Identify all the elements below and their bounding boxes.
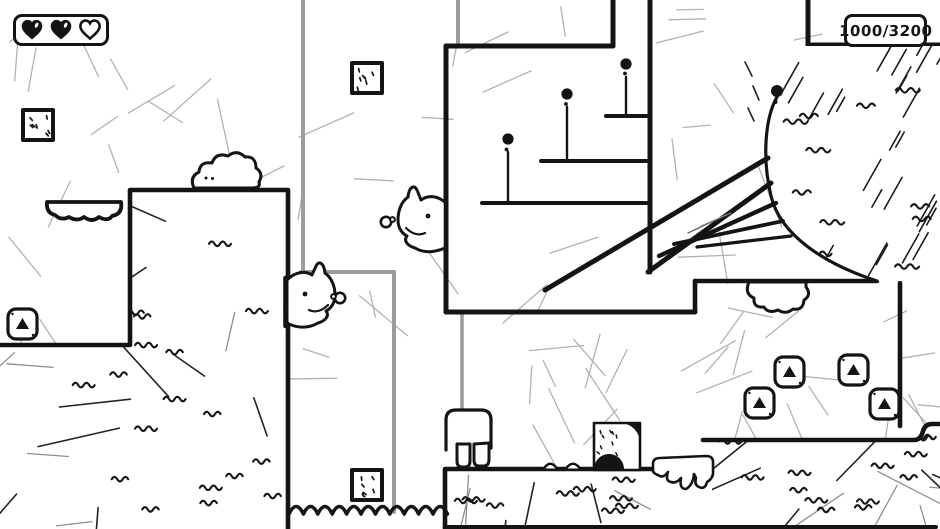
score-counter: 1000/3200	[844, 14, 927, 47]
circle-outer-dashes	[745, 62, 759, 121]
jump-pad-5	[870, 389, 899, 419]
health-hearts-box	[13, 14, 109, 46]
game-viewport[interactable]: 1000/3200	[0, 0, 940, 529]
creature-leg-left	[457, 444, 470, 467]
balloon-pin-1	[502, 133, 513, 203]
balloon-pin-3	[620, 58, 631, 116]
pig-character-right	[381, 187, 447, 252]
slug-1	[544, 464, 557, 469]
creature-leg-right	[474, 443, 489, 466]
pig-left-puff-small	[331, 294, 336, 299]
sheep-eye-right	[211, 177, 214, 180]
crate-1	[23, 110, 53, 140]
scalloped-platform	[47, 202, 121, 220]
walker-creature	[446, 410, 491, 467]
cloud-under-ledge	[747, 282, 808, 312]
puzzle-block	[594, 423, 640, 470]
jump-pad-4	[745, 388, 774, 418]
cloud-sheep	[192, 153, 261, 188]
counter-value: 1000/3200	[838, 22, 932, 40]
balloon-pin-2	[561, 88, 572, 161]
pig-right-head	[398, 187, 447, 252]
sheep-eye-left	[205, 177, 208, 180]
heart-icon-empty	[77, 18, 103, 42]
pig-right-puff-small	[390, 217, 395, 222]
water-wave-line	[289, 507, 447, 515]
balloon-pins	[502, 58, 631, 203]
crate-2	[352, 63, 382, 93]
crate-3	[352, 470, 382, 500]
platform-left	[0, 190, 346, 529]
pig-right-eye	[426, 214, 431, 219]
circle-top-dot	[771, 85, 783, 97]
slug-2	[566, 464, 580, 469]
heart-icon-filled	[19, 18, 45, 42]
jump-pad-1	[8, 309, 37, 339]
circle-top-minidot	[774, 100, 778, 104]
heart-icon-filled	[48, 18, 74, 42]
platform-bottom-right	[683, 424, 940, 529]
jump-pad-2	[775, 357, 804, 387]
pig-left-eye	[303, 292, 308, 297]
giant-circle	[745, 29, 940, 282]
jump-pad-3	[839, 355, 868, 385]
game-scene	[0, 0, 940, 529]
motion-rays	[545, 158, 791, 290]
